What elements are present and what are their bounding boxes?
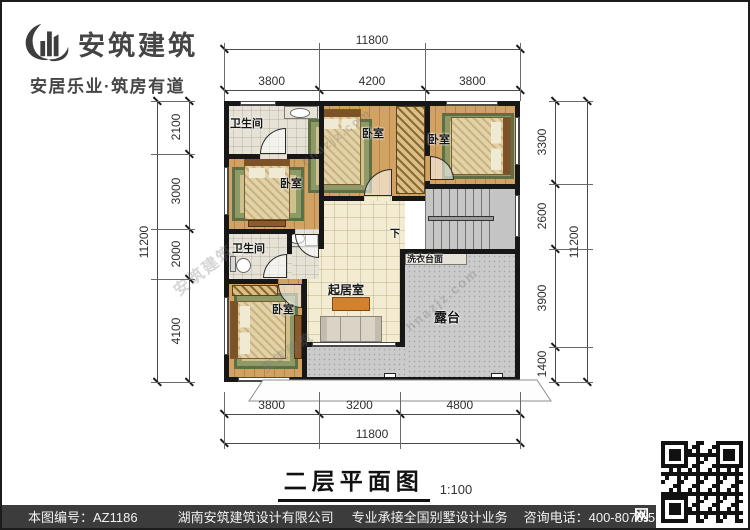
dim-extension [549, 101, 593, 102]
dim-tick [583, 378, 592, 387]
wall [224, 229, 295, 234]
room-label-bedroom-top-right: 卧室 [428, 131, 450, 147]
dim-extension [151, 382, 195, 383]
dim-tick [185, 378, 194, 387]
window [446, 101, 498, 106]
wardrobe [232, 285, 278, 296]
window [240, 101, 276, 106]
brand-block: 安筑建筑 安居乐业·筑房有道 [24, 20, 198, 97]
wall [224, 279, 278, 284]
dim-tick [516, 439, 525, 448]
dim-extension [224, 43, 225, 101]
window [312, 342, 396, 347]
dresser [248, 220, 286, 227]
dim-label: 3300 [535, 129, 549, 156]
footer-doc-number: 本图编号：AZ1186 [28, 507, 138, 526]
dim-line [587, 101, 588, 382]
wall [425, 184, 520, 189]
dim-extension [520, 43, 521, 101]
dim-tick [516, 45, 525, 54]
room-label-living: 起居室 [328, 281, 364, 298]
brand-name: 安筑建筑 [78, 24, 198, 63]
web-label: 网 [634, 504, 649, 525]
dim-extension [319, 43, 320, 101]
dim-extension [151, 229, 195, 230]
dim-extension [425, 43, 426, 101]
wall [400, 249, 405, 347]
dim-label: 11800 [356, 427, 388, 441]
dim-extension [224, 392, 225, 449]
drawing-scale: 1:100 [440, 482, 473, 502]
dim-label: 1400 [535, 351, 549, 378]
qr-module [739, 519, 743, 523]
window [515, 117, 520, 165]
dim-extension [549, 184, 593, 185]
dim-tick [551, 245, 560, 254]
dim-tick [185, 149, 194, 158]
drawing-title: 二层平面图 [278, 462, 430, 502]
dim-tick [220, 45, 229, 54]
dim-line [224, 90, 520, 91]
toilet [236, 258, 251, 273]
room-label-stairs-down: 下 [390, 225, 400, 240]
dim-label: 2000 [169, 241, 183, 268]
roof-eave-outline [247, 379, 553, 408]
wall [392, 196, 425, 201]
dim-extension [549, 382, 593, 383]
room-label-bedroom-left: 卧室 [280, 175, 302, 191]
dim-tick [153, 97, 162, 106]
dim-tick [153, 378, 162, 387]
dim-label: 4200 [359, 74, 386, 88]
dim-tick [185, 97, 194, 106]
dim-tick [583, 97, 592, 106]
footer-service: 专业承接全国别墅设计业务 [352, 507, 508, 526]
dim-tick [516, 86, 525, 95]
drawing-sheet: 安筑建筑 安居乐业·筑房有道 卫生间卧室卧室卧室卫生间卧室起居室洗衣台面露台下 … [0, 0, 750, 530]
dim-label: 2100 [169, 114, 183, 141]
title-block: 二层平面图 1:100 [2, 462, 748, 502]
dim-label: 3800 [258, 74, 285, 88]
dim-tick [220, 439, 229, 448]
door-opening [364, 196, 392, 201]
dim-tick [185, 225, 194, 234]
dim-label: 3800 [459, 74, 486, 88]
qr-code [656, 436, 748, 528]
dim-line [224, 414, 520, 415]
dim-extension [549, 347, 593, 348]
dim-tick [220, 86, 229, 95]
sofa [320, 316, 382, 342]
window [224, 297, 229, 355]
footer-company: 湖南安筑建筑设计有限公司 [178, 507, 334, 526]
room-label-bedroom-bottom: 卧室 [272, 301, 294, 317]
door-opening [260, 154, 287, 159]
bed [451, 117, 511, 175]
dim-line [224, 443, 520, 444]
dim-tick [220, 410, 229, 419]
window [515, 195, 520, 237]
coffee-table [332, 297, 370, 311]
dim-line [157, 101, 158, 382]
stair-handrail [428, 216, 494, 221]
dim-label: 3900 [535, 285, 549, 312]
brand-tagline: 安居乐业·筑房有道 [24, 72, 198, 97]
wall [425, 101, 430, 156]
dim-tick [421, 86, 430, 95]
dim-extension [151, 154, 195, 155]
door-opening [287, 254, 292, 278]
dim-label: 11200 [567, 225, 581, 257]
room-label-laundry: 洗衣台面 [407, 252, 443, 265]
dim-tick [315, 86, 324, 95]
dim-tick [315, 410, 324, 419]
dim-tick [551, 179, 560, 188]
wall [287, 234, 292, 254]
dim-line [224, 49, 520, 50]
dim-tick [551, 343, 560, 352]
dim-tick [551, 97, 560, 106]
wall [319, 101, 324, 249]
dim-line [189, 101, 190, 382]
dim-label: 2600 [535, 203, 549, 230]
room-label-bath-top: 卫生间 [230, 115, 263, 131]
room-label-bedroom-top-mid: 卧室 [362, 125, 384, 141]
dim-label: 11800 [356, 33, 388, 47]
closet [396, 106, 425, 194]
dim-extension [549, 249, 593, 250]
dim-tick [396, 410, 405, 419]
dim-label: 11200 [137, 225, 151, 257]
dim-label: 3000 [169, 178, 183, 205]
floor-plan: 卫生间卧室卧室卧室卫生间卧室起居室洗衣台面露台下 [224, 101, 520, 382]
sink [290, 108, 310, 118]
window [224, 167, 229, 215]
dim-extension [151, 101, 195, 102]
dim-label: 4100 [169, 317, 183, 344]
dim-line [555, 101, 556, 382]
wall [319, 196, 364, 201]
dim-tick [516, 410, 525, 419]
building-swoosh-icon [24, 20, 72, 67]
